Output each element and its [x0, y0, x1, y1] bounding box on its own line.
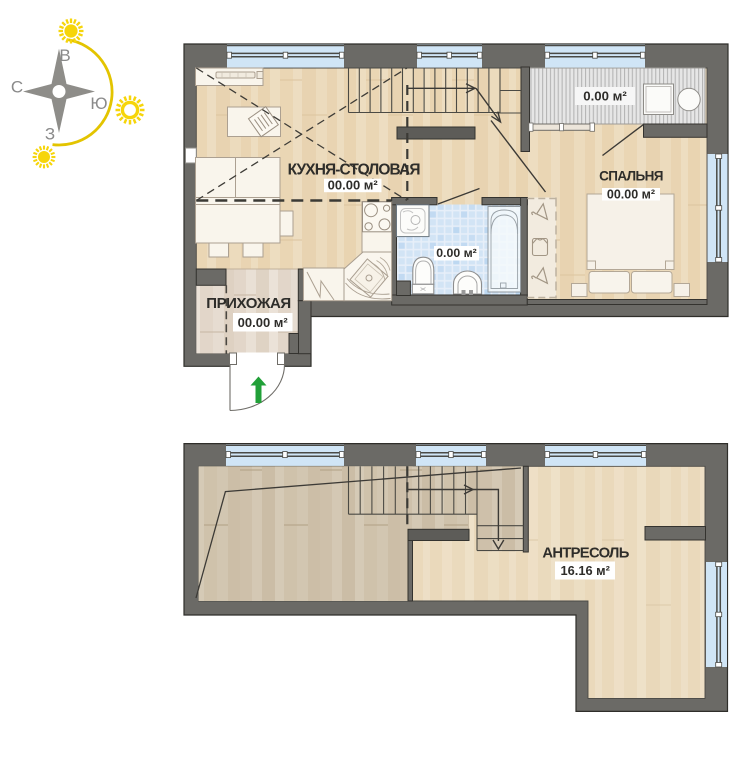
svg-text:Ю: Ю: [90, 94, 107, 113]
svg-text:0.00 м²: 0.00 м²: [436, 246, 477, 260]
svg-text:КУХНЯ-СТОЛОВАЯ: КУХНЯ-СТОЛОВАЯ: [288, 162, 421, 179]
svg-text:00.00 м²: 00.00 м²: [238, 315, 289, 330]
svg-text:00.00 м²: 00.00 м²: [328, 178, 379, 193]
svg-text:00.00 м²: 00.00 м²: [607, 187, 655, 201]
svg-text:З: З: [45, 125, 55, 144]
svg-text:СПАЛЬНЯ: СПАЛЬНЯ: [599, 169, 663, 184]
svg-text:С: С: [11, 78, 23, 97]
svg-text:ПРИХОЖАЯ: ПРИХОЖАЯ: [206, 295, 291, 312]
svg-text:АНТРЕСОЛЬ: АНТРЕСОЛЬ: [542, 546, 629, 562]
svg-text:В: В: [59, 46, 70, 65]
svg-text:16.16 м²: 16.16 м²: [561, 563, 610, 578]
svg-text:0.00 м²: 0.00 м²: [583, 89, 627, 104]
